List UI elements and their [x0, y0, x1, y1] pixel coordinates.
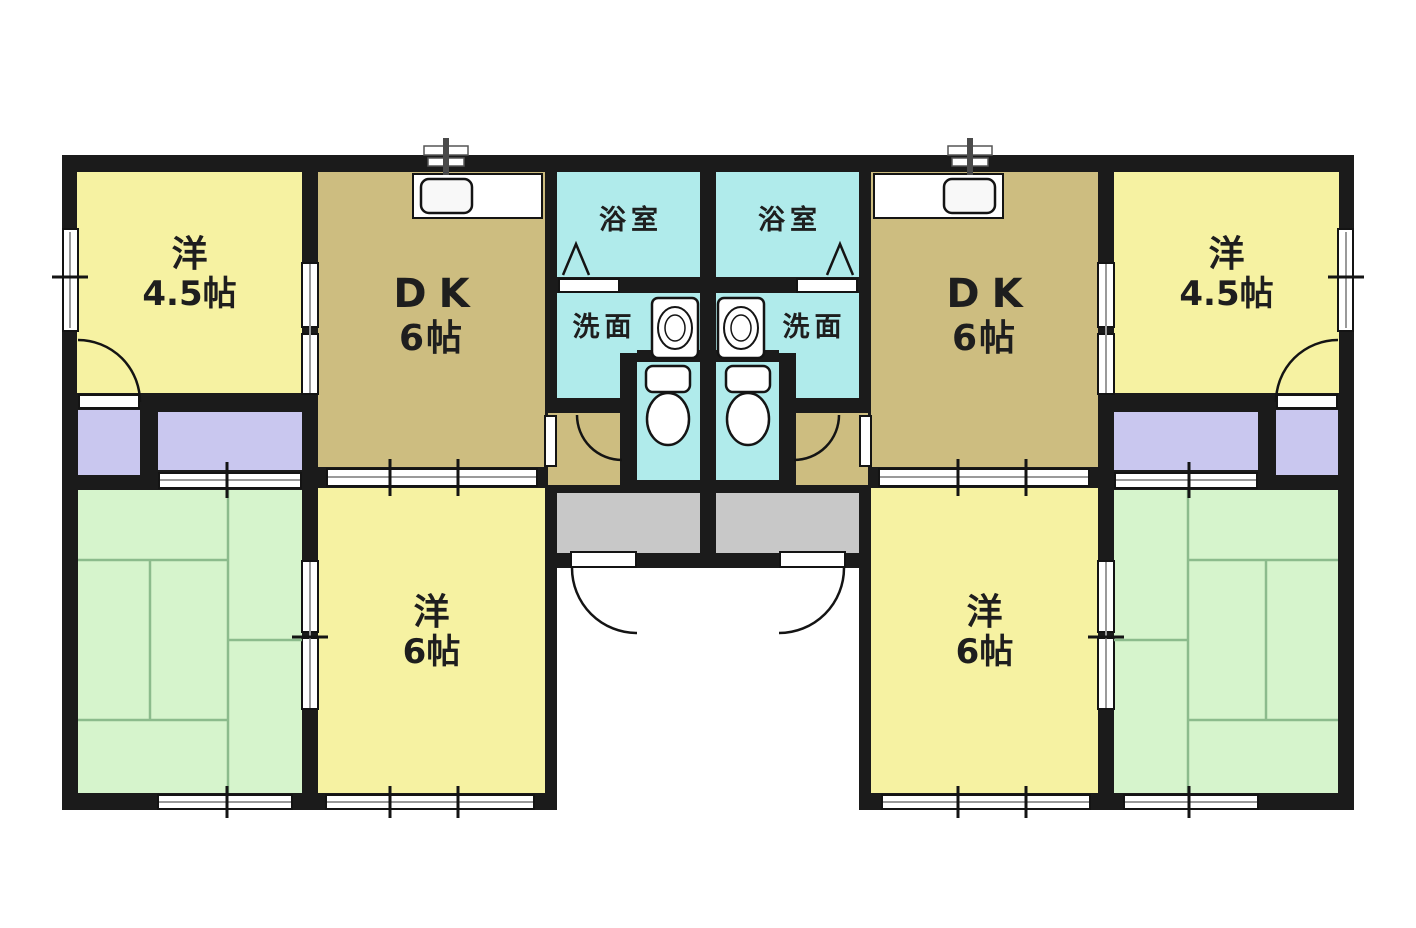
sliding-door-tatami-west6-right-b	[1097, 637, 1115, 710]
label-western45-right-name: 洋	[1114, 234, 1339, 275]
sliding-door-tatami-west6-left-a	[301, 560, 319, 633]
window-south-tatami-right	[1123, 794, 1259, 810]
wall-toilet-left	[620, 353, 637, 398]
entry-door-leaf-right	[779, 551, 846, 568]
sliding-door-closet-tatami-left	[158, 472, 302, 489]
wall-toilet-right	[779, 353, 796, 398]
room-toilet-right	[716, 362, 779, 480]
bath-door-right	[796, 278, 858, 293]
room-tatami-right	[1114, 490, 1338, 793]
sliding-door-dk-west6-left	[326, 468, 538, 487]
label-dk-right-area: 6帖	[871, 318, 1098, 359]
exterior-notch	[557, 568, 859, 928]
hall-door-leaf-right	[859, 415, 872, 467]
sliding-door-closet-tatami-right	[1114, 472, 1258, 489]
sliding-door-tatami-west6-right-a	[1097, 560, 1115, 633]
label-western6-right-area: 6帖	[871, 633, 1098, 672]
window-east-wall-right	[1337, 228, 1354, 332]
label-bath-left: 浴室	[557, 206, 700, 237]
label-bath-right: 浴室	[716, 206, 859, 237]
window-south-west6-left	[325, 794, 535, 810]
closet-wide-left	[158, 412, 302, 470]
label-western6-left: 洋 6帖	[318, 592, 545, 672]
sliding-door-west45-dk-left-b	[301, 333, 319, 395]
closet-small-right	[1276, 410, 1338, 475]
label-dk-right: DK 6帖	[871, 272, 1098, 359]
closet-door-west45-right	[1276, 394, 1338, 409]
label-dk-right-name: DK	[871, 272, 1098, 318]
label-western6-right: 洋 6帖	[871, 592, 1098, 672]
window-south-tatami-left	[157, 794, 293, 810]
hallway-right	[796, 413, 868, 485]
room-toilet-left	[637, 362, 700, 480]
sliding-door-west45-dk-left-a	[301, 262, 319, 328]
floor-plan: 洋 4.5帖 DK 6帖 浴室 洗面 洋 6帖 洋 4.5帖 DK 6帖 浴室 …	[0, 0, 1416, 928]
room-tatami-left	[78, 490, 302, 793]
closet-wide-right	[1114, 412, 1258, 470]
entry-door-leaf-left	[570, 551, 637, 568]
label-dk-left: DK 6帖	[318, 272, 545, 359]
label-western6-right-name: 洋	[871, 592, 1098, 633]
window-south-west6-right	[881, 794, 1091, 810]
hall-door-leaf-left	[544, 415, 557, 467]
sliding-door-west45-dk-right-a	[1097, 262, 1115, 328]
label-western45-left-name: 洋	[77, 234, 302, 275]
closet-door-west45-left	[78, 394, 140, 409]
label-western45-left-area: 4.5帖	[77, 275, 302, 314]
label-dk-left-area: 6帖	[318, 318, 545, 359]
label-dk-left-name: DK	[318, 272, 545, 318]
sliding-door-tatami-west6-left-b	[301, 637, 319, 710]
kitchen-counter-left	[412, 173, 543, 219]
label-western45-right-area: 4.5帖	[1114, 275, 1339, 314]
kitchen-counter-right	[873, 173, 1004, 219]
entrance-genkan-right	[716, 493, 859, 553]
bath-door-left	[558, 278, 620, 293]
entrance-genkan-left	[557, 493, 700, 553]
sliding-door-west45-dk-right-b	[1097, 333, 1115, 395]
sliding-door-dk-west6-right	[878, 468, 1090, 487]
label-wash-right: 洗面	[762, 313, 862, 344]
label-wash-left: 洗面	[552, 313, 652, 344]
label-western45-right: 洋 4.5帖	[1114, 234, 1339, 314]
label-western45-left: 洋 4.5帖	[77, 234, 302, 314]
label-western6-left-area: 6帖	[318, 633, 545, 672]
closet-small-left	[78, 410, 140, 475]
label-western6-left-name: 洋	[318, 592, 545, 633]
hallway-left	[548, 413, 620, 485]
